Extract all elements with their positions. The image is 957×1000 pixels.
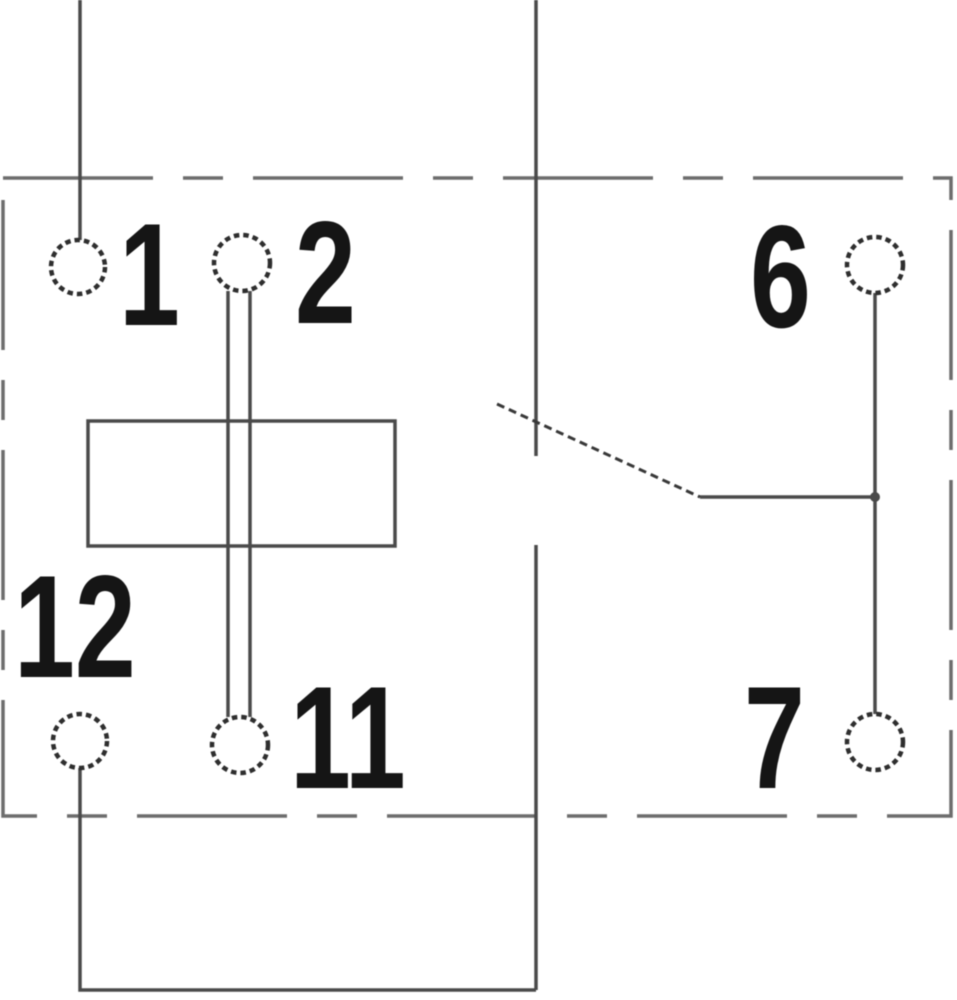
terminal-12-circle [53, 714, 107, 768]
relay-schematic: 1 2 6 7 11 12 [0, 0, 957, 1000]
wire-junction-dot [870, 492, 880, 502]
coil-symbol [88, 421, 395, 546]
terminal-6-circle [847, 237, 903, 293]
terminal-2-circle [214, 235, 270, 291]
terminal-labels-group: 1 2 6 7 11 12 [14, 192, 811, 820]
terminal-1-label: 1 [119, 194, 180, 357]
terminal-7-circle [847, 714, 903, 770]
terminal-12-label: 12 [14, 546, 136, 709]
actuator-double-line [228, 291, 250, 717]
terminal-11-label: 11 [290, 657, 406, 820]
relay-schematic-canvas: 1 2 6 7 11 12 [0, 0, 957, 1000]
terminal-11-circle [212, 717, 268, 773]
wires-group [80, 0, 875, 990]
terminal-2-label: 2 [295, 192, 356, 355]
contact-blade [497, 404, 700, 497]
terminal-7-label: 7 [744, 657, 805, 820]
terminal-1-circle [51, 240, 105, 294]
terminal-6-label: 6 [750, 196, 811, 359]
